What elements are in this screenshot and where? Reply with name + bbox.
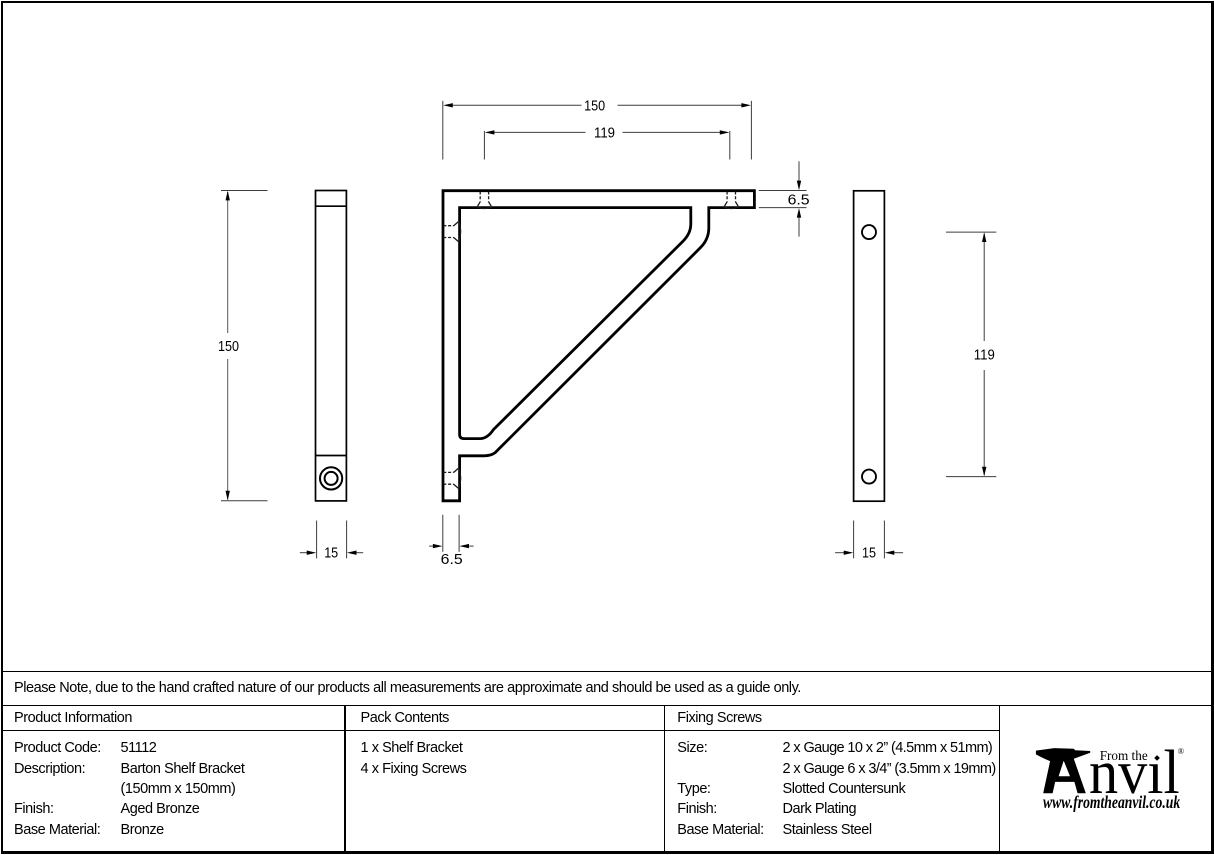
- svg-text:15: 15: [324, 545, 338, 561]
- svg-text:6.5: 6.5: [441, 552, 463, 568]
- svg-text:150: 150: [584, 99, 605, 115]
- svg-text:6.5: 6.5: [788, 192, 810, 208]
- svg-text:119: 119: [974, 348, 995, 364]
- svg-text:119: 119: [594, 126, 615, 142]
- svg-text:150: 150: [218, 339, 239, 355]
- svg-text:15: 15: [862, 545, 876, 561]
